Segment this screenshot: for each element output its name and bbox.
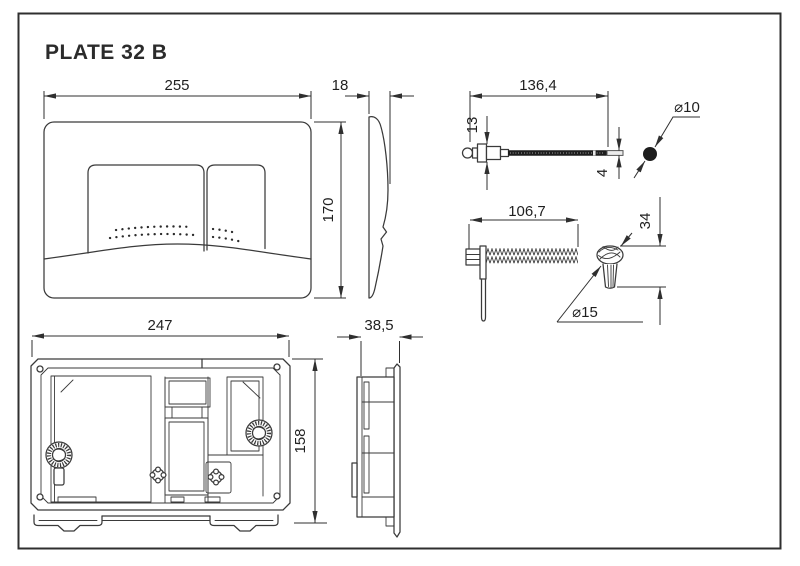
technical-drawing: PLATE 32 B 255 170 18 136,4: [0, 0, 800, 566]
screw-connector: [466, 249, 480, 265]
screw-hole: [37, 366, 43, 372]
ball-diameter-leader: [655, 117, 700, 147]
frame-profile-flange: [394, 364, 400, 537]
knob-body: [603, 264, 617, 288]
dim-ball-diameter: ⌀10: [674, 99, 700, 116]
dim-screw-length: 106,7: [508, 203, 546, 220]
dim-cable-length: 136,4: [519, 77, 557, 94]
dim-front-height: 170: [320, 197, 337, 222]
bottom-rail: [34, 515, 278, 531]
dim-cable-head-height: 13: [464, 117, 481, 134]
cable-tip: [607, 151, 623, 156]
dim-frame-width: 247: [147, 317, 172, 334]
front-view: 255 170: [44, 77, 346, 298]
dim-frame-depth: 38,5: [364, 317, 393, 334]
page-title: PLATE 32 B: [45, 41, 167, 64]
cable-end-ball: [463, 148, 473, 158]
screw-flange: [480, 246, 486, 279]
plate-outline: [44, 122, 311, 298]
dim-frame-height: 158: [292, 428, 309, 453]
plate-profile-outline: [369, 117, 388, 298]
screw-hole: [274, 364, 280, 370]
frame-profile-clip: [352, 463, 357, 497]
dim-cable-tip-diameter: 4: [594, 169, 611, 177]
screw-part-drawing: 106,7: [466, 203, 578, 321]
dim-knob-diameter: ⌀15: [572, 304, 598, 321]
screw-lever-tail: [482, 279, 486, 321]
dim-plate-depth: 18: [332, 77, 349, 94]
frame-profile-body: [357, 377, 394, 517]
technical-drawing-page: PLATE 32 B 255 170 18 136,4: [0, 0, 800, 566]
plate-profile-view: 18: [332, 77, 414, 298]
screw-hole: [274, 493, 280, 499]
dim-front-width: 255: [164, 77, 189, 94]
ball-detail-drawing: ⌀10: [634, 99, 700, 178]
wheel-housing-left: [54, 468, 64, 485]
cable-shaft: [508, 150, 607, 156]
ball: [643, 147, 657, 161]
cable-part-drawing: 136,4 13 4: [463, 77, 624, 190]
adjuster-wheel-left: [46, 442, 72, 468]
screw-hole: [37, 494, 43, 500]
adjuster-wheel-right: [246, 420, 272, 446]
screw-thread: [486, 248, 578, 264]
frame-back-view: 247: [31, 317, 327, 531]
cable-head-flange: [478, 144, 487, 162]
frame-profile-view: 38,5: [337, 317, 423, 537]
knob-cap: [597, 246, 623, 264]
dim-knob-height: 34: [637, 213, 654, 230]
